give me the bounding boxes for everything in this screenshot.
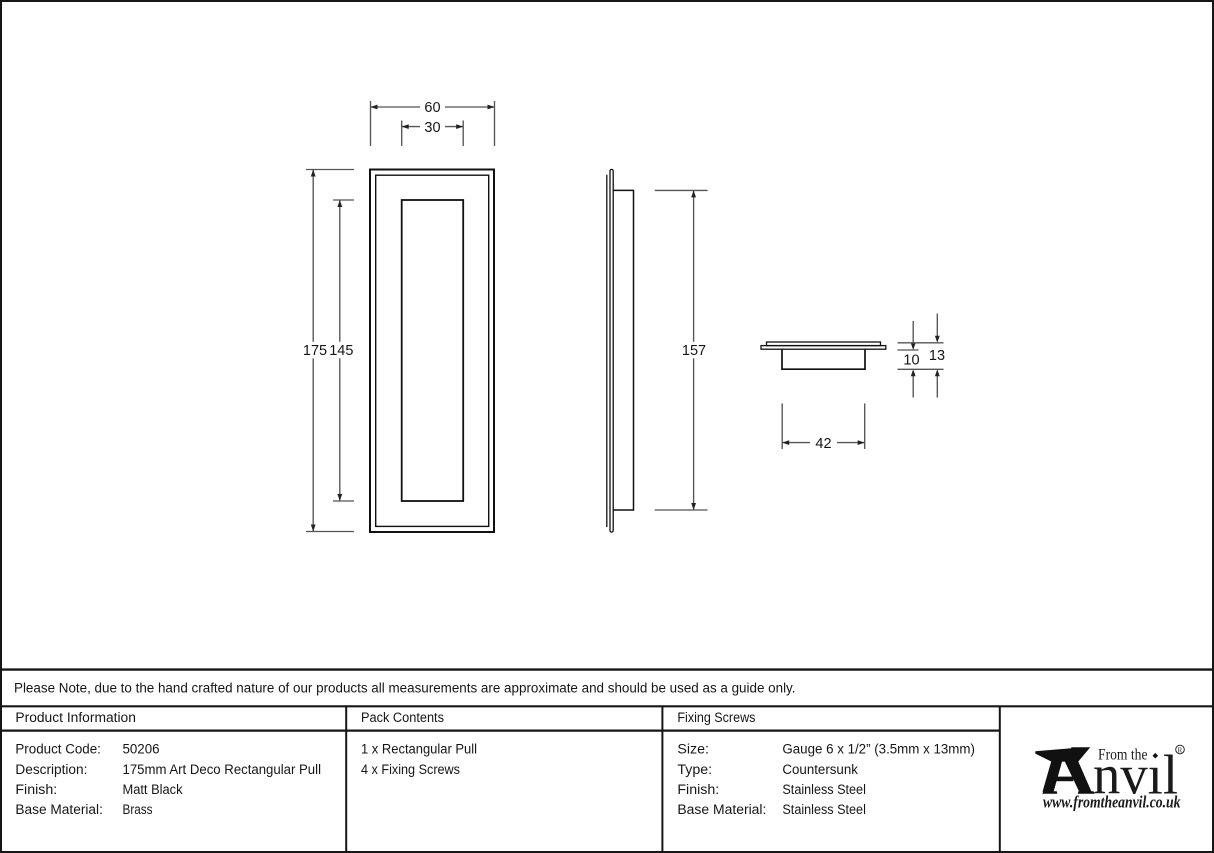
svg-text:4 x Fixing Screws: 4 x Fixing Screws [361,762,460,778]
svg-text:Fixing Screws: Fixing Screws [677,710,755,726]
svg-text:Matt Black: Matt Black [123,782,184,798]
svg-text:145: 145 [329,343,353,359]
svg-text:1 x Rectangular Pull: 1 x Rectangular Pull [361,741,477,757]
svg-text:Base Material:: Base Material: [15,802,103,818]
svg-text:Size:: Size: [677,741,709,757]
svg-text:Base Material:: Base Material: [677,802,766,818]
svg-text:From the: From the [1098,747,1148,764]
svg-text:Product Information: Product Information [15,710,135,726]
svg-text:Description:: Description: [15,762,87,778]
svg-text:Countersunk: Countersunk [782,762,858,778]
svg-text:R: R [1178,746,1183,754]
svg-text:13: 13 [929,348,945,364]
svg-text:Brass: Brass [123,802,153,818]
svg-text:Product Code:: Product Code: [15,741,101,757]
svg-text:Finish:: Finish: [677,782,719,798]
svg-text:42: 42 [815,436,831,452]
svg-text:Type:: Type: [677,762,712,778]
svg-text:175mm Art Deco Rectangular Pul: 175mm Art Deco Rectangular Pull [123,762,322,778]
svg-text:157: 157 [682,343,706,359]
svg-text:175: 175 [303,343,327,359]
svg-text:Pack Contents: Pack Contents [361,710,444,726]
svg-text:Finish:: Finish: [15,782,57,798]
svg-text:10: 10 [903,352,919,368]
svg-text:Gauge 6 x 1/2” (3.5mm x 13mm): Gauge 6 x 1/2” (3.5mm x 13mm) [782,741,975,757]
svg-text:30: 30 [424,120,440,136]
svg-text:Stainless Steel: Stainless Steel [782,782,866,798]
svg-text:www.fromtheanvil.co.uk: www.fromtheanvil.co.uk [1043,793,1181,812]
svg-text:Stainless Steel: Stainless Steel [782,802,866,818]
svg-text:Please Note, due to the hand c: Please Note, due to the hand crafted nat… [14,681,796,697]
svg-text:50206: 50206 [123,741,160,757]
svg-text:60: 60 [424,100,440,116]
